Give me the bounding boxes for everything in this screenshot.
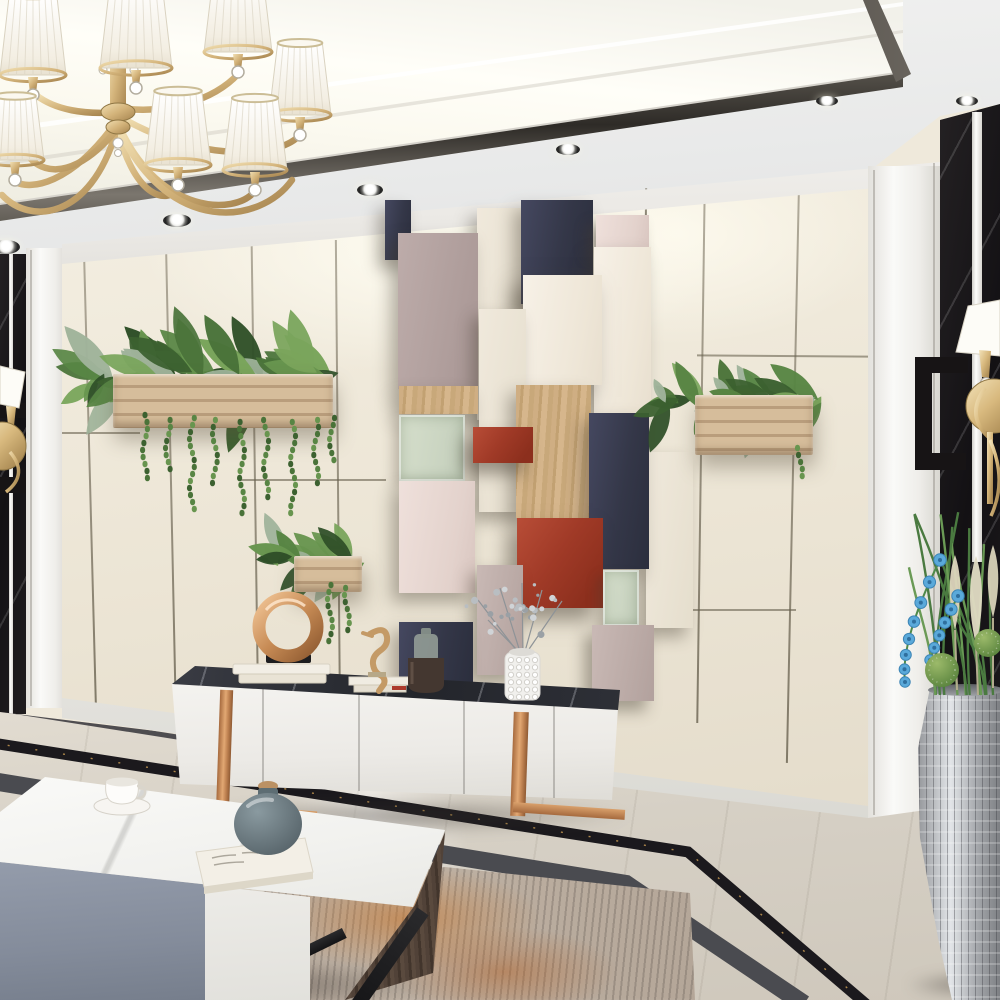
living-room-scene — [0, 0, 1000, 1000]
tea-cup — [94, 778, 150, 816]
table-vase — [234, 781, 302, 855]
coffee-table-decor — [0, 0, 1000, 1000]
